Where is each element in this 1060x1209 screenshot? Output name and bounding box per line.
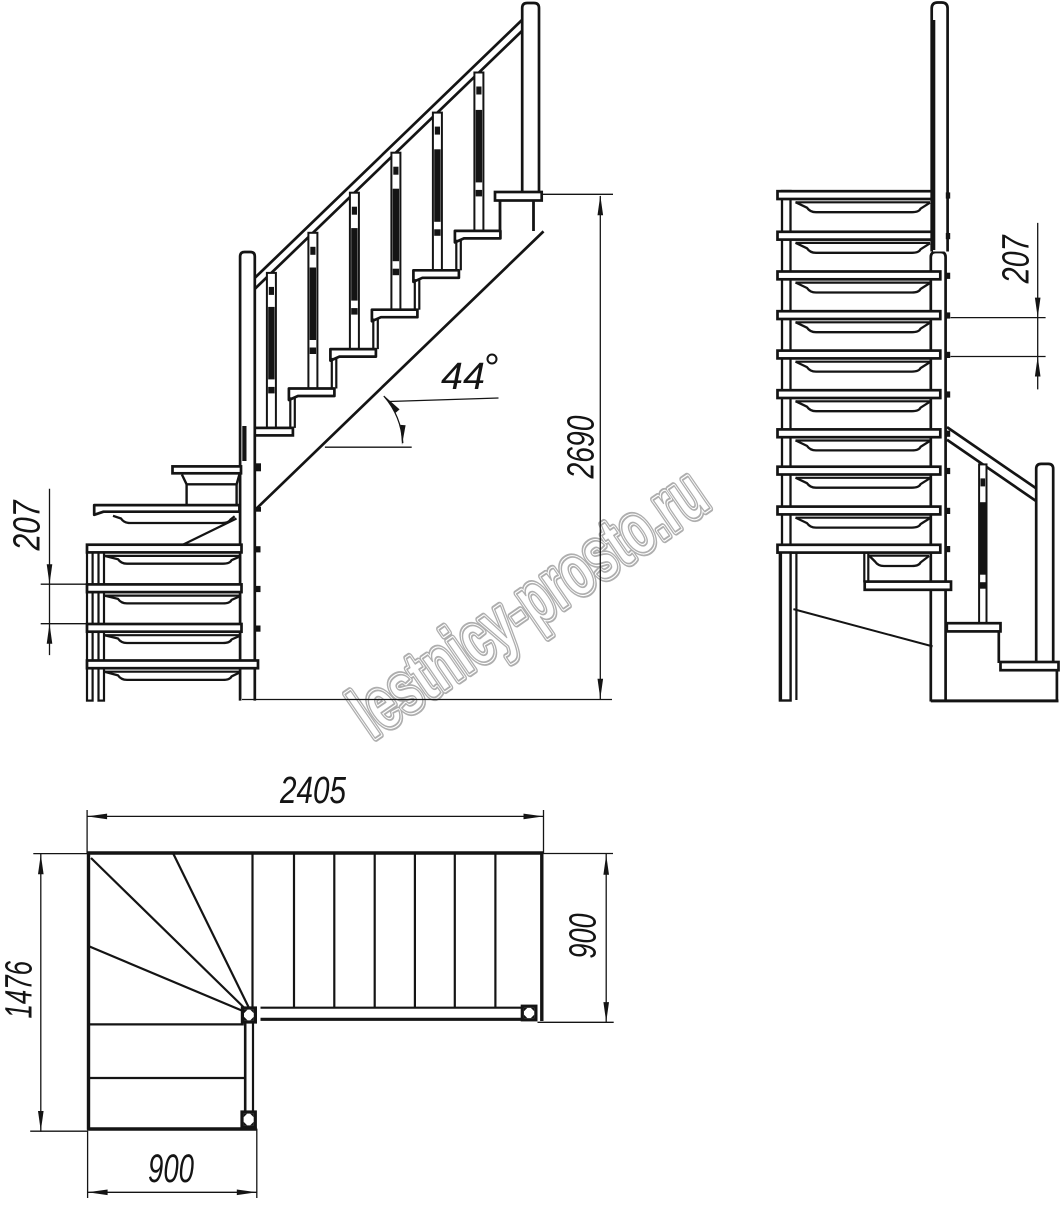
svg-text:2405: 2405 [279,770,346,812]
svg-text:207: 207 [7,499,49,551]
svg-text:900: 900 [563,913,605,958]
svg-text:44: 44 [441,356,485,398]
svg-text:207: 207 [996,234,1038,284]
svg-text:900: 900 [148,1147,194,1191]
svg-text:1476: 1476 [0,960,41,1018]
svg-text:2690: 2690 [561,416,603,480]
